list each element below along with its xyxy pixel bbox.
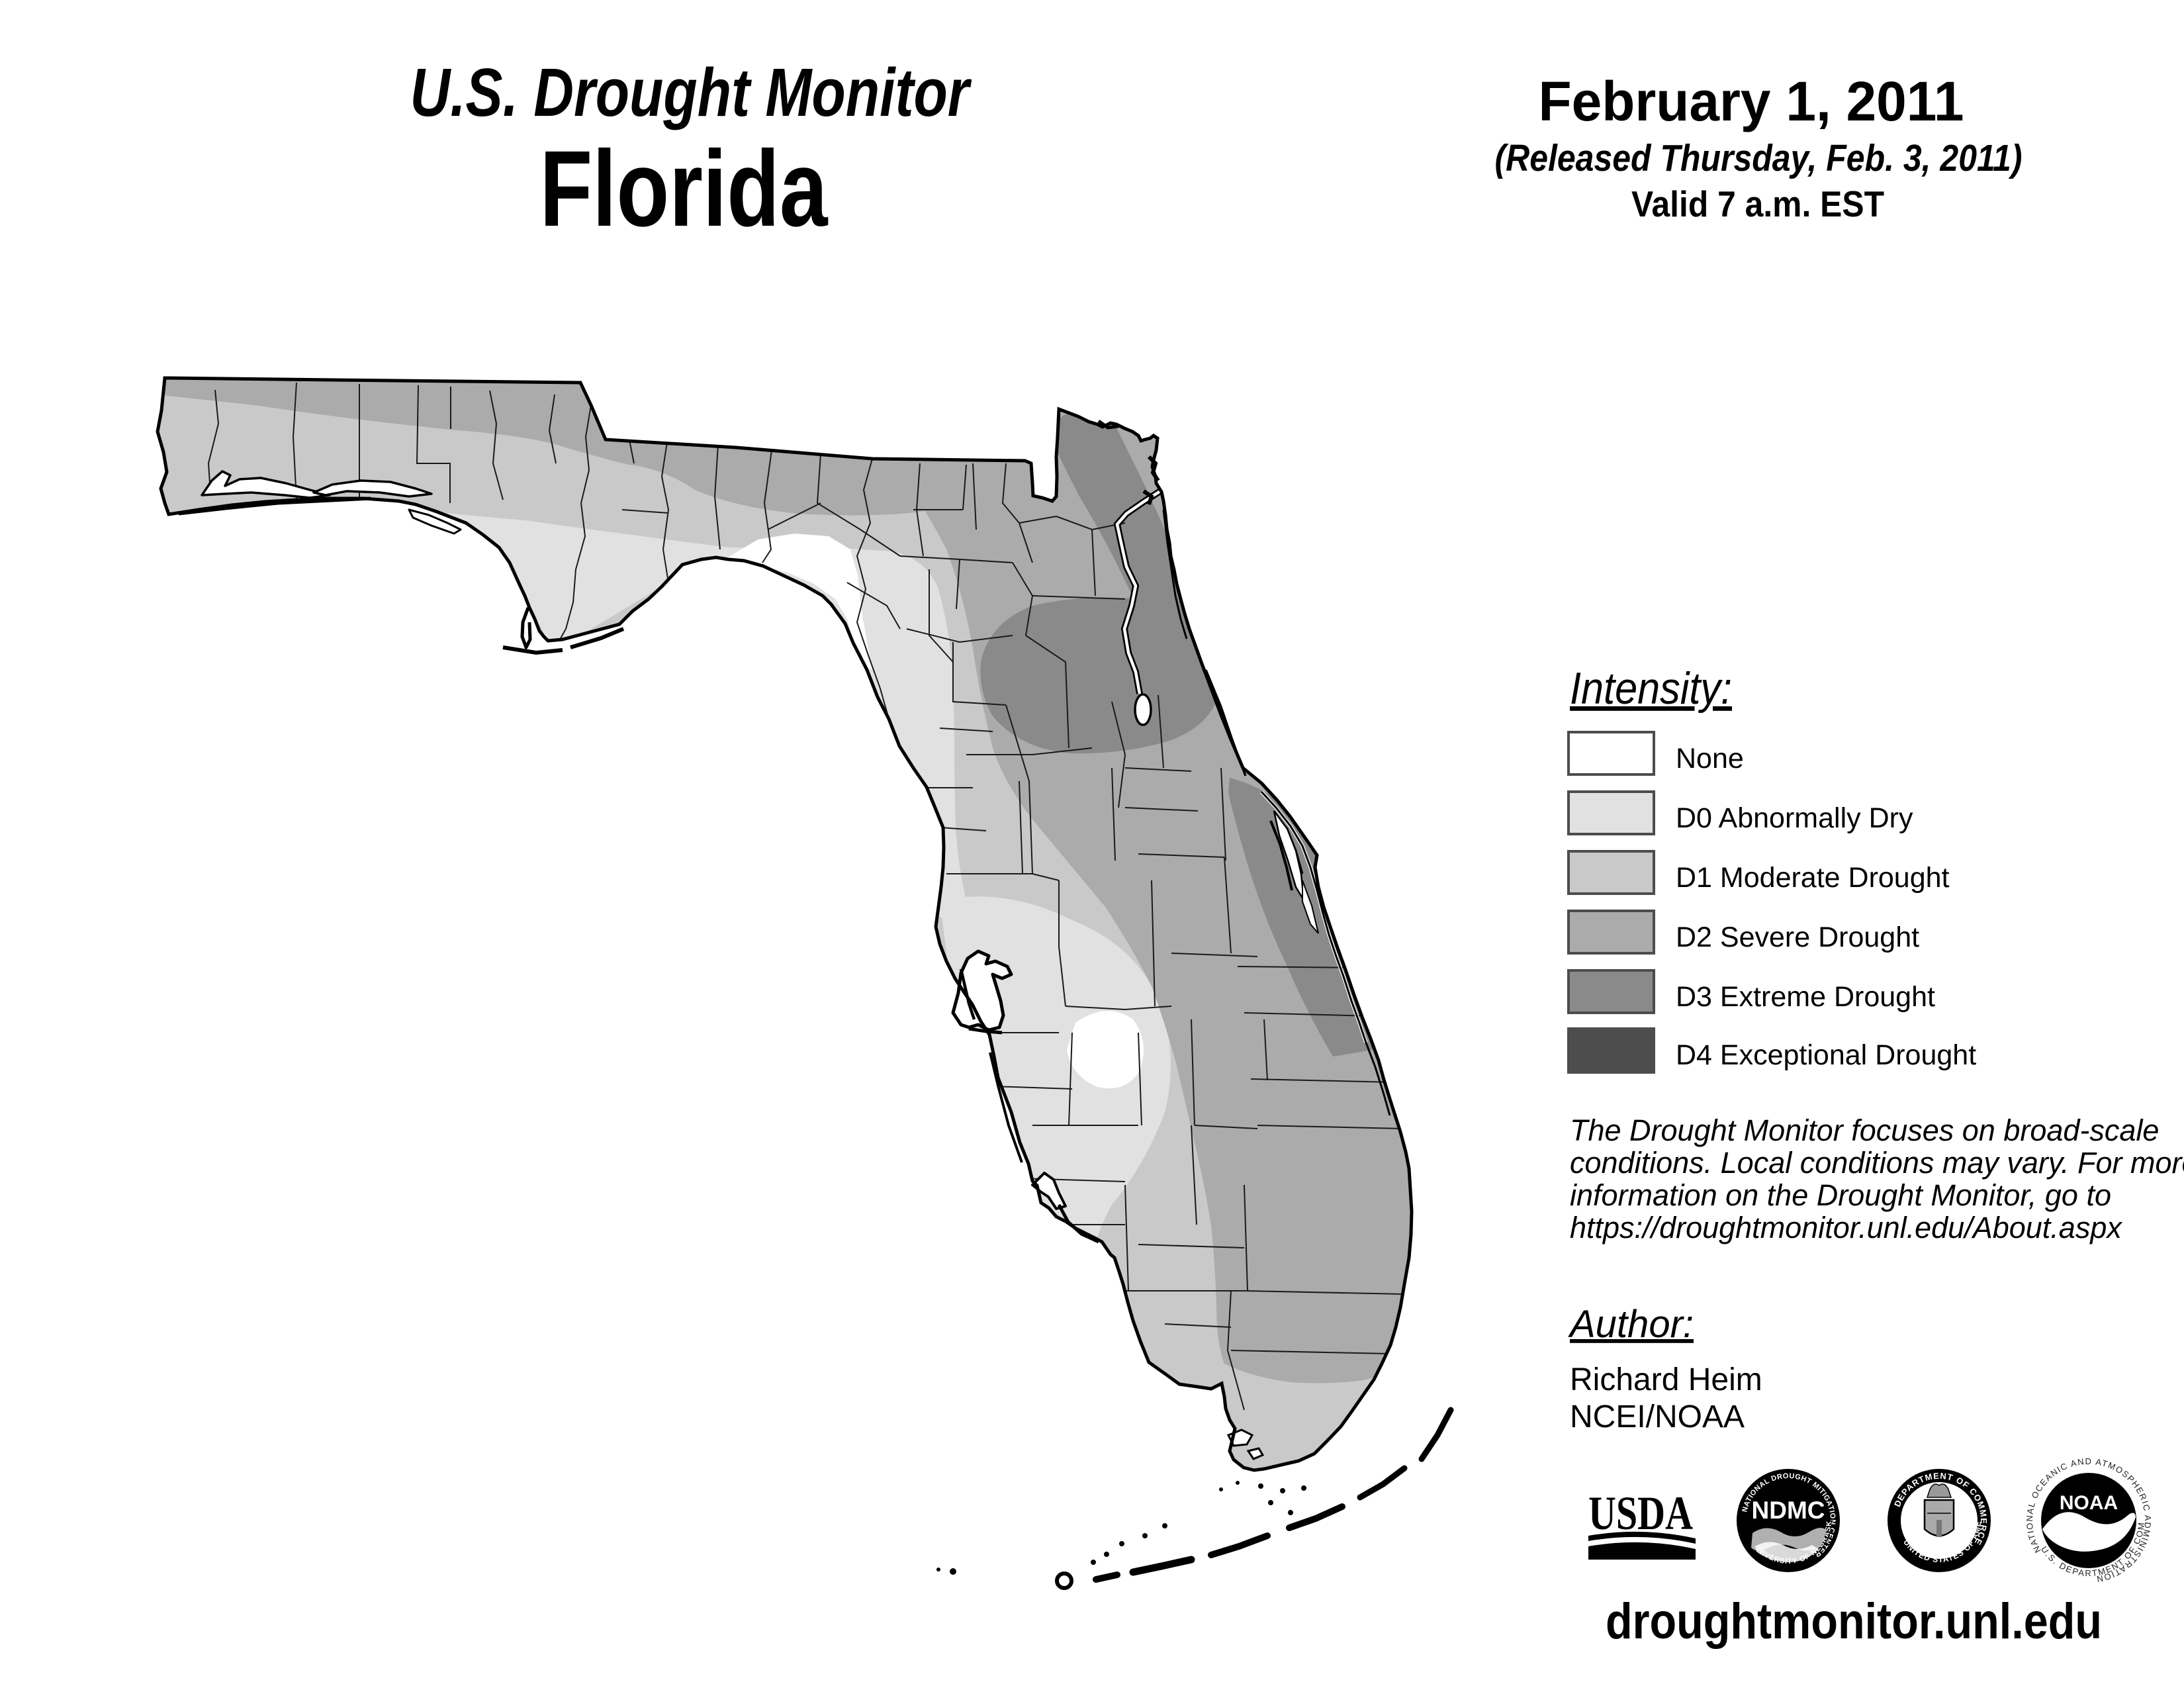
svg-text:D1 Moderate Drought: D1 Moderate Drought (1676, 862, 1950, 894)
svg-text:Florida: Florida (540, 128, 829, 249)
svg-text:(Released Thursday, Feb. 3, 20: (Released Thursday, Feb. 3, 2011) (1495, 137, 2023, 179)
svg-text:NCEI/NOAA: NCEI/NOAA (1570, 1399, 1745, 1434)
svg-text:droughtmonitor.unl.edu: droughtmonitor.unl.edu (1606, 1593, 2102, 1650)
svg-text:conditions. Local conditions m: conditions. Local conditions may vary. F… (1570, 1146, 2184, 1180)
svg-text:Richard Heim: Richard Heim (1570, 1362, 1762, 1397)
svg-text:D4 Exceptional Drought: D4 Exceptional Drought (1676, 1039, 1976, 1071)
svg-text:NOAA: NOAA (2060, 1492, 2118, 1514)
svg-text:D2 Severe Drought: D2 Severe Drought (1676, 921, 1919, 953)
svg-text:Valid 7 a.m. EST: Valid 7 a.m. EST (1631, 183, 1884, 224)
svg-text:February 1, 2011: February 1, 2011 (1539, 70, 1964, 132)
svg-text:D3 Extreme Drought: D3 Extreme Drought (1676, 981, 1935, 1013)
svg-text:UNIVERSITY OF NEBRASKA: UNIVERSITY OF NEBRASKA (0, 0, 1833, 1566)
svg-text:https://droughtmonitor.unl.edu: https://droughtmonitor.unl.edu/About.asp… (1570, 1211, 2122, 1244)
svg-text:D0 Abnormally Dry: D0 Abnormally Dry (1676, 802, 1913, 834)
svg-text:Author:: Author: (1568, 1303, 1694, 1346)
svg-text:The Drought Monitor focuses on: The Drought Monitor focuses on broad-sca… (1570, 1113, 2159, 1147)
svg-text:U.S. Drought Monitor: U.S. Drought Monitor (410, 54, 972, 130)
svg-text:information on the Drought Mon: information on the Drought Monitor, go t… (1570, 1178, 2111, 1212)
svg-text:Intensity:: Intensity: (1570, 663, 1732, 714)
svg-text:NDMC: NDMC (1752, 1497, 1825, 1524)
svg-text:None: None (1676, 743, 1744, 774)
